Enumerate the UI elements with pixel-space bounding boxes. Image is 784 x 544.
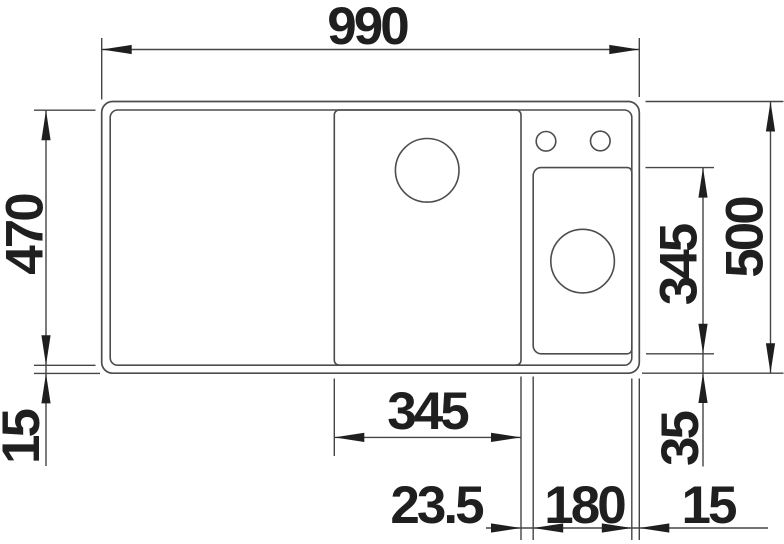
svg-text:345: 345 [650,224,709,305]
svg-text:15: 15 [682,476,736,535]
svg-text:345: 345 [387,382,468,441]
svg-text:470: 470 [0,194,55,275]
svg-text:990: 990 [327,0,408,56]
svg-text:500: 500 [716,197,775,278]
svg-text:23.5: 23.5 [390,476,483,535]
svg-text:35: 35 [651,412,710,466]
svg-text:15: 15 [0,410,51,464]
svg-text:180: 180 [544,476,625,535]
